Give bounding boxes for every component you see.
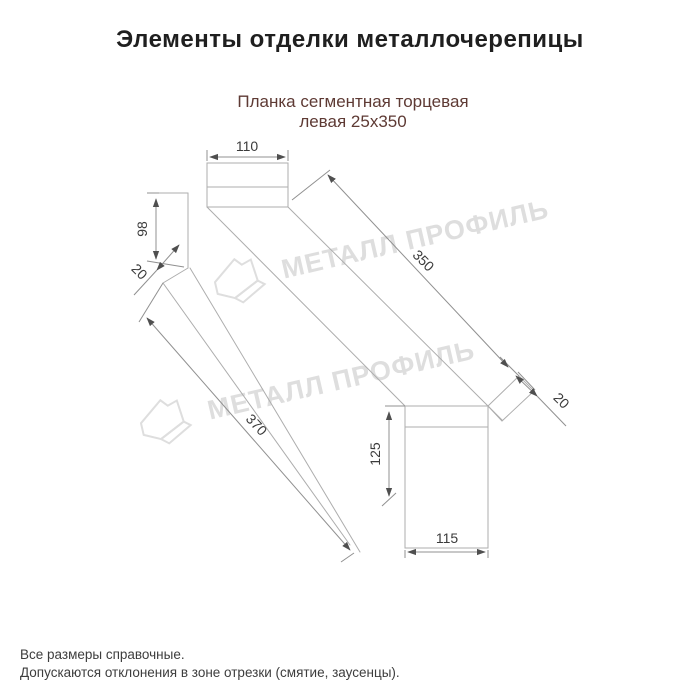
metal-profil-logo-icon [137, 395, 194, 449]
dim-98-label: 98 [134, 221, 150, 237]
footnotes: Все размеры справочные. Допускаются откл… [20, 646, 400, 682]
watermark-upper: МЕТАЛЛ ПРОФИЛЬ [211, 188, 554, 308]
spec-sheet-page: Элементы отделки металлочерепицы Планка … [0, 0, 700, 700]
metal-profil-logo-icon [211, 254, 268, 308]
dim-115-label: 115 [436, 530, 459, 546]
ext-line [292, 170, 330, 200]
top-end-face [207, 163, 288, 207]
technical-drawing: МЕТАЛЛ ПРОФИЛЬ МЕТАЛЛ ПРОФИЛЬ [0, 0, 700, 700]
footnote-line1: Все размеры справочные. [20, 646, 400, 664]
right-fold-tab [488, 376, 534, 421]
dim-370-line [147, 318, 350, 550]
ext-line [500, 357, 519, 376]
dim-125-label: 125 [367, 442, 383, 466]
watermark-text: МЕТАЛЛ ПРОФИЛЬ [279, 194, 552, 285]
dim-350-line [328, 175, 508, 367]
dim-20-left-line [157, 245, 179, 270]
ext-line [341, 553, 354, 562]
dim-20-left-label: 20 [128, 260, 150, 282]
ext-line [147, 261, 184, 267]
ext-line [139, 283, 163, 322]
watermark-text: МЕТАЛЛ ПРОФИЛЬ [205, 335, 478, 426]
left-fold-flap [163, 268, 188, 283]
dim-20-right-label: 20 [550, 389, 572, 411]
dim-110-label: 110 [236, 138, 259, 154]
dim-20-right-line [516, 376, 537, 396]
footnote-line2: Допускаются отклонения в зоне отрезки (с… [20, 664, 400, 682]
